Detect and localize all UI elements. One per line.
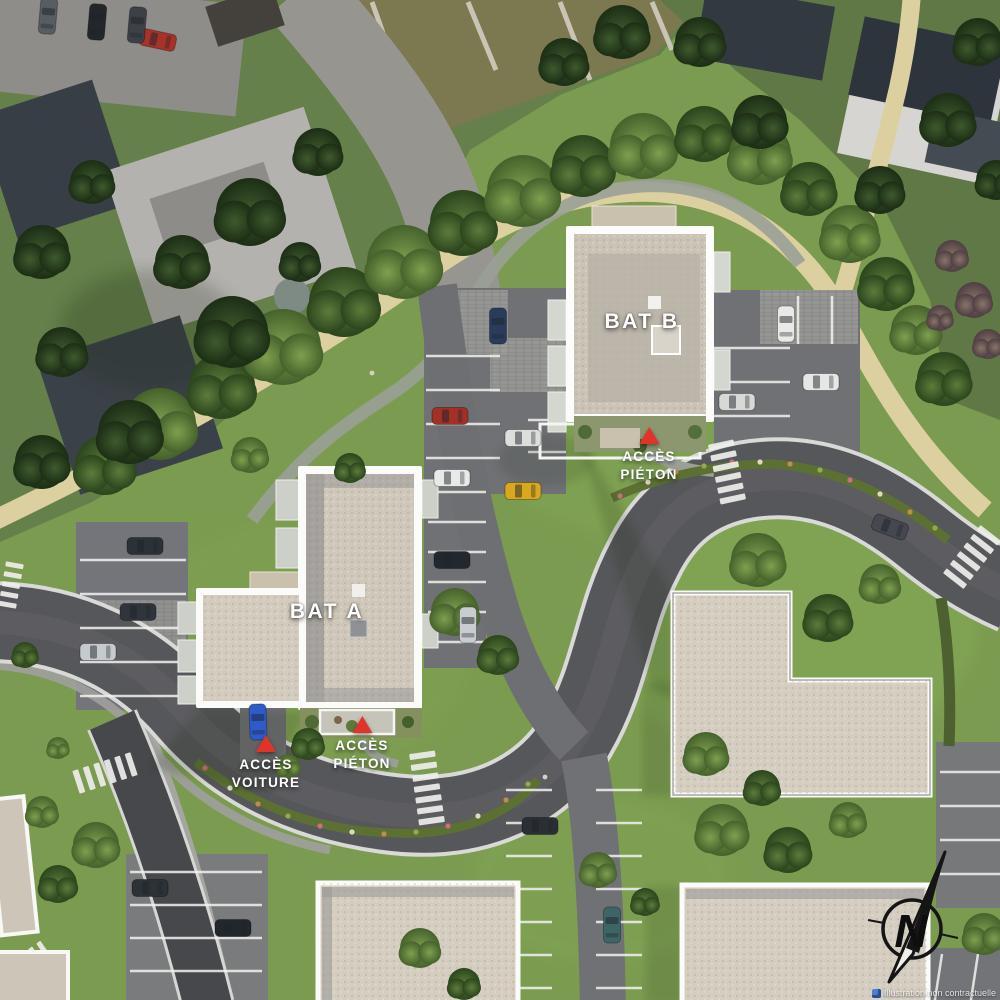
photo-pond	[274, 278, 310, 314]
car	[460, 607, 477, 643]
flower-dot	[349, 829, 354, 834]
flower-dot	[255, 801, 260, 806]
car	[38, 0, 58, 35]
flower-dot	[877, 491, 882, 496]
balcony	[276, 480, 300, 520]
flower-dot	[701, 463, 706, 468]
roof-hatch	[648, 296, 661, 309]
tree-canopy	[247, 200, 286, 239]
flower-dot	[445, 823, 450, 828]
tree-canopy	[719, 821, 749, 851]
building-south-west-corner	[0, 952, 68, 1000]
tree-canopy	[939, 313, 954, 328]
balcony	[714, 350, 730, 390]
tree-canopy	[757, 112, 788, 143]
marker-acces-pieton-bat-b: ACCÈS PIÉTON	[620, 427, 677, 484]
car	[127, 538, 163, 555]
tree-canopy	[418, 941, 441, 964]
tree-canopy	[760, 782, 781, 803]
flower-dot	[817, 467, 822, 472]
pedestrian	[370, 371, 375, 376]
tree-canopy	[279, 333, 323, 377]
flower-dot	[381, 831, 386, 836]
access-triangle-icon	[256, 735, 276, 752]
car	[434, 552, 470, 569]
disclaimer-text: Illustration non contractuelle	[884, 988, 996, 998]
roof-edge-dark	[324, 688, 414, 702]
balcony	[714, 252, 730, 292]
balcony	[276, 528, 300, 568]
balcony	[178, 602, 198, 634]
tree-canopy	[248, 449, 269, 470]
aerial-site-plan: N BAT B BAT A ACCÈS PIÉTON ACCÈS VOITURE…	[0, 0, 1000, 1000]
marker-label-line: ACCÈS	[622, 448, 675, 466]
tree-canopy	[94, 837, 121, 864]
roof-texture	[203, 595, 299, 701]
car	[778, 306, 795, 342]
tree-canopy	[950, 250, 969, 269]
credit-logo-icon	[872, 989, 881, 998]
car	[127, 6, 147, 43]
marker-label-line: ACCÈS	[239, 756, 292, 774]
flower-dot	[757, 459, 762, 464]
balcony	[548, 346, 566, 386]
tree-canopy	[179, 252, 210, 283]
tree-canopy	[562, 53, 590, 81]
tree-canopy	[945, 110, 976, 141]
compass-letter: N	[894, 905, 928, 957]
flower-dot	[907, 509, 912, 514]
car	[80, 644, 116, 661]
tree-canopy	[698, 33, 727, 62]
marker-acces-voiture: ACCÈS VOITURE	[232, 735, 300, 792]
tree-canopy	[400, 249, 443, 292]
tree-canopy	[39, 452, 70, 483]
flower-dot	[932, 525, 937, 530]
tree-canopy	[596, 864, 617, 885]
tree-canopy	[878, 181, 906, 209]
tree-canopy	[462, 978, 481, 997]
tree-canopy	[316, 143, 344, 171]
car	[604, 907, 621, 943]
car	[505, 483, 541, 500]
tree-canopy	[40, 806, 59, 825]
tree-canopy	[786, 842, 813, 869]
car	[87, 3, 107, 40]
tree-canopy	[704, 746, 730, 772]
tree-canopy	[826, 609, 854, 637]
tree-canopy	[24, 650, 39, 665]
tree-canopy	[806, 179, 837, 210]
car	[505, 430, 541, 447]
car	[120, 604, 156, 621]
tree-canopy	[219, 374, 257, 412]
tree-canopy	[57, 744, 70, 757]
roof-hatch	[352, 584, 365, 597]
tree-canopy	[846, 814, 867, 835]
tree-canopy	[60, 343, 89, 372]
tree-canopy	[306, 738, 325, 757]
car	[432, 408, 468, 425]
tree-canopy	[56, 877, 78, 899]
tree-canopy	[496, 648, 519, 671]
balcony	[178, 640, 198, 672]
flower-dot	[503, 797, 508, 802]
car	[490, 308, 507, 344]
flower-dot	[847, 477, 852, 482]
tree-canopy	[156, 411, 198, 453]
flower-dot	[525, 781, 530, 786]
marker-label-line: VOITURE	[232, 774, 300, 792]
paver-stalls	[760, 290, 858, 344]
tree-canopy	[883, 274, 914, 305]
tree-canopy	[972, 294, 993, 315]
tree-canopy	[878, 577, 901, 600]
flower-dot	[787, 461, 792, 466]
car	[132, 880, 168, 897]
roof-terrace	[250, 572, 304, 590]
access-triangle-icon	[639, 427, 659, 444]
access-triangle-icon	[352, 716, 372, 733]
tree-canopy	[341, 289, 382, 330]
tree-canopy	[847, 224, 881, 258]
tree-canopy	[701, 124, 733, 156]
car	[522, 818, 558, 835]
balcony	[178, 676, 198, 704]
tree-canopy	[941, 369, 972, 400]
footer-disclaimer: Illustration non contractuelle	[872, 988, 996, 998]
balcony	[548, 300, 566, 340]
tree-canopy	[127, 420, 164, 457]
parking-lot-east	[936, 742, 1000, 908]
tree-canopy	[39, 242, 70, 273]
marker-label-line: PIÉTON	[620, 466, 677, 484]
roof-terrace	[592, 206, 676, 228]
flower-dot	[317, 823, 322, 828]
label-bat-b: BAT B	[604, 310, 679, 334]
site-plan-rendering: N	[0, 0, 1000, 1000]
label-bat-a: BAT A	[290, 600, 364, 624]
pedestrian	[543, 775, 548, 780]
flower-dot	[475, 813, 480, 818]
tree-canopy	[644, 897, 660, 913]
marker-acces-pieton-bat-a: ACCÈS PIÉTON	[333, 716, 390, 773]
flower-dot	[285, 813, 290, 818]
car	[434, 470, 470, 487]
tree-canopy	[755, 550, 786, 581]
tree-canopy	[640, 134, 678, 172]
car	[803, 374, 839, 391]
balcony	[548, 392, 566, 432]
marker-label-line: ACCÈS	[335, 737, 388, 755]
tree-canopy	[349, 463, 366, 480]
tree-canopy	[90, 174, 116, 200]
flower-dot	[413, 829, 418, 834]
roof-edge-dark	[306, 474, 324, 702]
car	[719, 394, 755, 411]
flower-dot	[617, 493, 622, 498]
tree-canopy	[298, 255, 321, 278]
car	[215, 920, 251, 937]
tree-canopy	[228, 319, 270, 361]
marker-label-line: PIÉTON	[333, 755, 390, 773]
tree-canopy	[619, 22, 650, 53]
